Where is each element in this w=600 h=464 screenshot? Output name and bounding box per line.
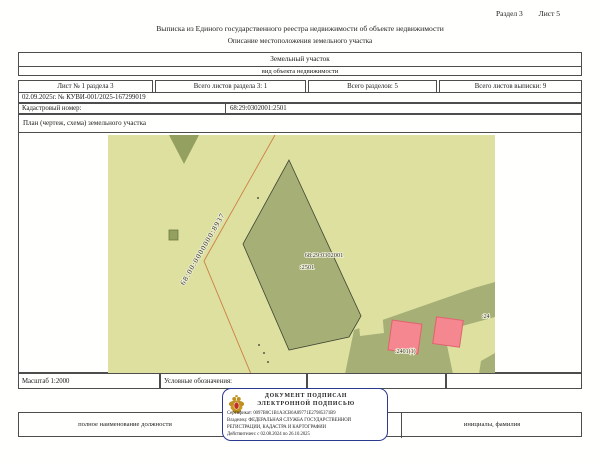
point-symbol xyxy=(258,344,260,346)
document-page: Раздел 3 Лист 5 Выписка из Единого госуд… xyxy=(0,0,600,464)
stamp-title: ДОКУМЕНТ ПОДПИСАН ЭЛЕКТРОННОЙ ПОДПИСЬЮ xyxy=(243,392,369,408)
stamp-owner2: РЕГИСТРАЦИИ, КАДАСТРА И КАРТОГРАФИИ xyxy=(227,424,385,431)
signature-stamp: ДОКУМЕНТ ПОДПИСАН ЭЛЕКТРОННОЙ ПОДПИСЬЮ С… xyxy=(222,388,388,441)
name-label: инициалы, фамилия xyxy=(401,413,583,438)
cadastral-map: 68:00:0000000:8937 68:29:0302001 :2501 :… xyxy=(108,135,495,374)
stamp-owner: Владелец: ФЕДЕРАЛЬНАЯ СЛУЖБА ГОСУДАРСТВЕ… xyxy=(227,417,385,424)
empty-cell xyxy=(446,373,582,389)
sheet-label: Лист 5 xyxy=(539,9,560,18)
legend-cell: Условные обозначения: xyxy=(160,373,307,389)
object-type-name: Земельный участок xyxy=(19,53,581,67)
page-title: Выписка из Единого государственного реес… xyxy=(0,24,600,33)
page-subtitle: Описание местоположения земельного участ… xyxy=(0,37,600,45)
point-symbol xyxy=(267,361,269,363)
vegetation-square xyxy=(169,230,178,240)
header-section-sheet: Раздел 3 Лист 5 xyxy=(482,9,560,18)
stamp-title-line1: ДОКУМЕНТ ПОДПИСАН xyxy=(243,392,369,400)
parcel-label-line1: 68:29:0302001 xyxy=(305,252,344,259)
plan-header: План (чертеж, схема) земельного участка xyxy=(19,115,581,133)
stamp-certificate: Сертификат: 0097B0C1B1A3CB6A89771E279853… xyxy=(227,410,385,417)
document-number: 02.09.2025г. № КУВИ-001/2025-167299019 xyxy=(18,92,582,103)
stamp-title-line2: ЭЛЕКТРОННОЙ ПОДПИСЬЮ xyxy=(243,400,369,408)
empty-cell xyxy=(307,373,446,389)
scale-cell: Масштаб 1:2000 xyxy=(18,373,160,389)
edge-parcel-label: :24 xyxy=(482,314,490,320)
position-label: полное наименование должности xyxy=(19,413,231,438)
object-type-box: Земельный участок вид объекта недвижимос… xyxy=(18,52,582,76)
building-2 xyxy=(433,317,463,347)
stamp-validity: Действителен: с 02.08.2024 по 26.10.2025 xyxy=(227,431,385,438)
map-svg: 68:00:0000000:8937 68:29:0302001 :2501 :… xyxy=(108,135,495,374)
neighbor-parcel-label: :2401(1) xyxy=(395,348,416,355)
plan-box: План (чертеж, схема) земельного участка xyxy=(18,114,582,373)
band-notch xyxy=(358,310,384,336)
object-type-caption: вид объекта недвижимости xyxy=(19,67,581,77)
point-symbol xyxy=(257,197,259,199)
parcel-label-line2: :2501 xyxy=(300,264,315,271)
section-label: Раздел 3 xyxy=(496,9,523,18)
point-symbol xyxy=(263,352,265,354)
cadastral-row: Кадастровый номер: 68:29:0302001:2501 xyxy=(18,103,582,114)
